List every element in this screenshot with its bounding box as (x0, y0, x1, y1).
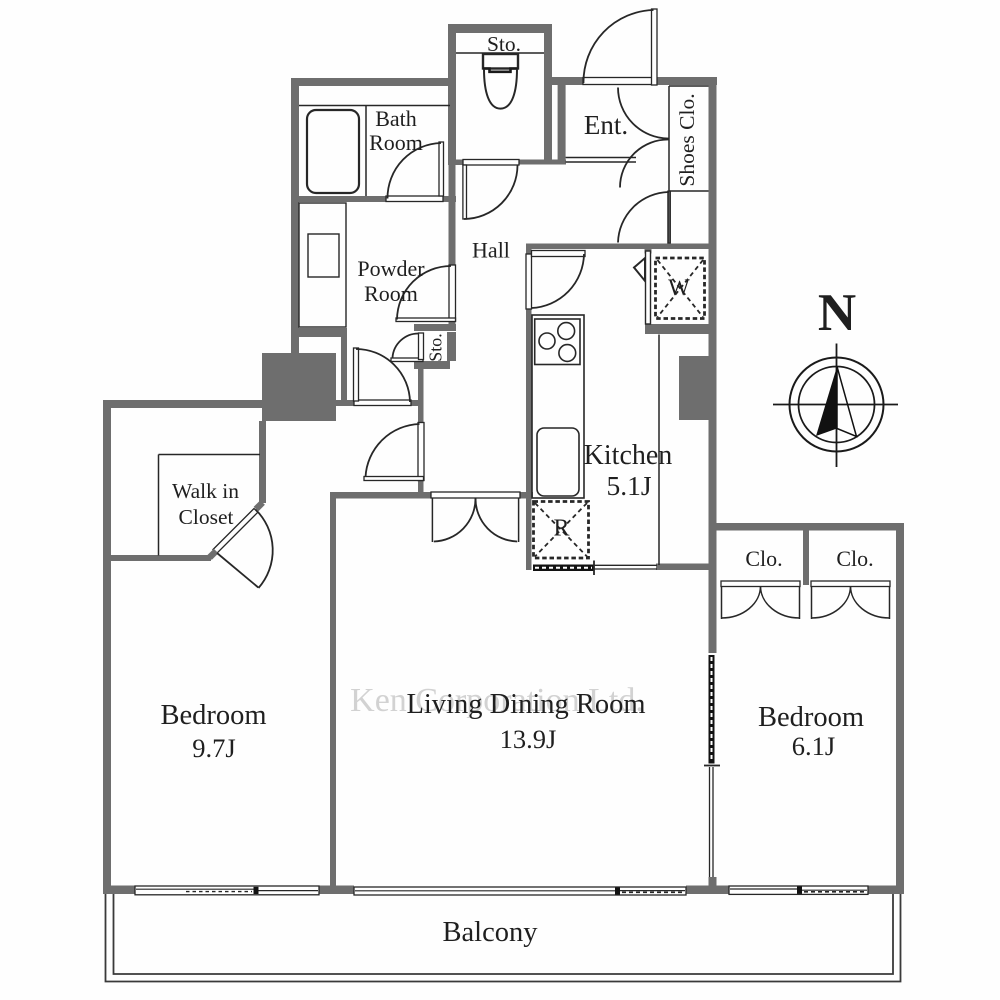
svg-text:Kitchen: Kitchen (584, 440, 673, 471)
svg-text:Sto.: Sto. (487, 32, 521, 56)
svg-text:W: W (668, 275, 690, 300)
svg-text:R: R (553, 516, 569, 542)
svg-text:Balcony: Balcony (443, 917, 539, 948)
svg-text:Powder: Powder (357, 256, 425, 281)
svg-text:Sto.: Sto. (426, 333, 446, 362)
svg-text:Room: Room (369, 130, 423, 155)
svg-text:6.1J: 6.1J (792, 731, 835, 761)
svg-text:Closet: Closet (179, 505, 234, 529)
svg-text:N: N (818, 284, 856, 342)
svg-text:Room: Room (364, 281, 418, 306)
svg-text:Living Dining Room: Living Dining Room (406, 689, 645, 720)
svg-text:Bedroom: Bedroom (758, 702, 864, 733)
svg-text:Bath: Bath (375, 106, 417, 131)
svg-text:Hall: Hall (472, 238, 510, 263)
svg-text:Clo.: Clo. (836, 546, 873, 571)
svg-text:Shoes Clo.: Shoes Clo. (675, 93, 699, 186)
svg-text:Walk in: Walk in (172, 479, 239, 503)
svg-text:13.9J: 13.9J (500, 724, 557, 754)
svg-text:Bedroom: Bedroom (160, 700, 266, 731)
svg-text:Clo.: Clo. (745, 546, 782, 571)
svg-text:Ent.: Ent. (584, 110, 628, 140)
svg-text:5.1J: 5.1J (606, 470, 651, 501)
svg-text:9.7J: 9.7J (192, 733, 235, 763)
